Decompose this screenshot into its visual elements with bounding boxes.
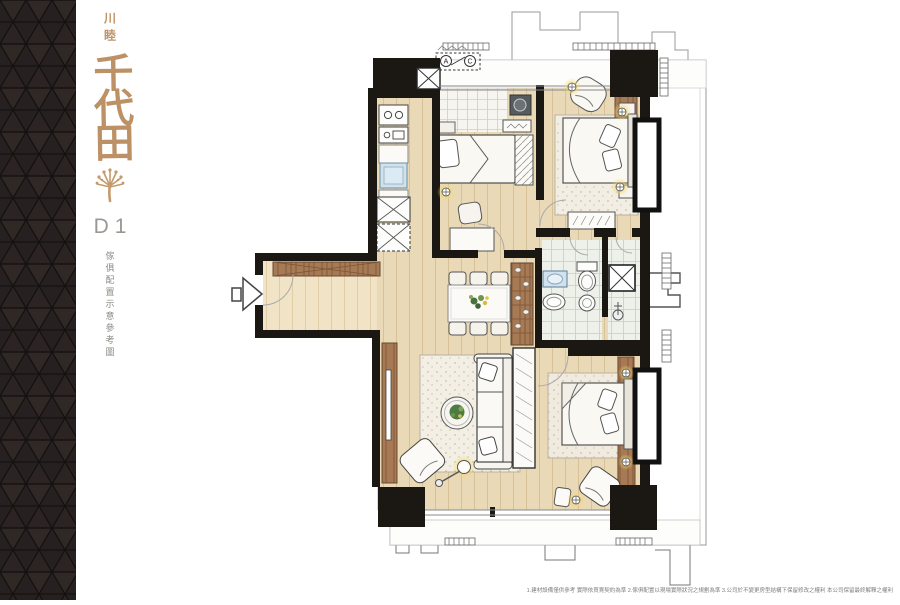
light-icon [613, 103, 631, 121]
decor-triangle-strip [0, 0, 76, 600]
light-icon [618, 454, 634, 470]
headboard [624, 379, 633, 449]
dining-chair [449, 272, 466, 285]
dining-chair [491, 272, 508, 285]
kitchen [377, 105, 410, 251]
wardrobe [515, 135, 533, 185]
vanity-sink [543, 294, 565, 310]
ac-unit-c-label: C [467, 59, 472, 66]
plant-icon [450, 405, 465, 420]
dining-chair [470, 272, 487, 285]
light-icon [563, 78, 581, 96]
toilet [577, 262, 597, 271]
bathroom-floor [542, 240, 602, 340]
dining-chair [449, 322, 466, 335]
light-icon [611, 178, 629, 196]
triangle-pattern [0, 0, 76, 600]
sofa [474, 354, 512, 469]
light-icon [618, 365, 634, 381]
washbasin [579, 295, 595, 311]
tv [386, 370, 391, 440]
pillow [478, 436, 498, 456]
light-icon [437, 183, 455, 201]
light-icon [567, 491, 585, 509]
desk [450, 228, 494, 251]
wardrobe-divider [513, 348, 535, 468]
unit-caption: 傢俱配置示意參考圖 [104, 251, 117, 359]
project-name: 千代田 [80, 52, 140, 158]
unit-label: D1 [88, 215, 133, 239]
dining-chair [491, 322, 508, 335]
kitchen-counter [379, 145, 408, 163]
bay-window [635, 370, 659, 462]
ac-unit-a-label: A [444, 59, 449, 66]
developer-logo: 川睦 [102, 12, 119, 46]
bay-window [635, 120, 659, 210]
desk-chair [458, 201, 483, 224]
disclaimer-text: 1.建材設備僅供參考 實際依買賣契約為準 2.傢俱配置以現場實際狀況之規劃為準 … [527, 586, 893, 594]
floor-plan: A C [228, 10, 708, 595]
balcony-sliding-door [425, 510, 610, 515]
dining-chair [470, 322, 487, 335]
brand-column: 川睦 千代田 D1 傢俱配置示意參考圖 [78, 12, 142, 359]
tree-icon [93, 167, 127, 203]
